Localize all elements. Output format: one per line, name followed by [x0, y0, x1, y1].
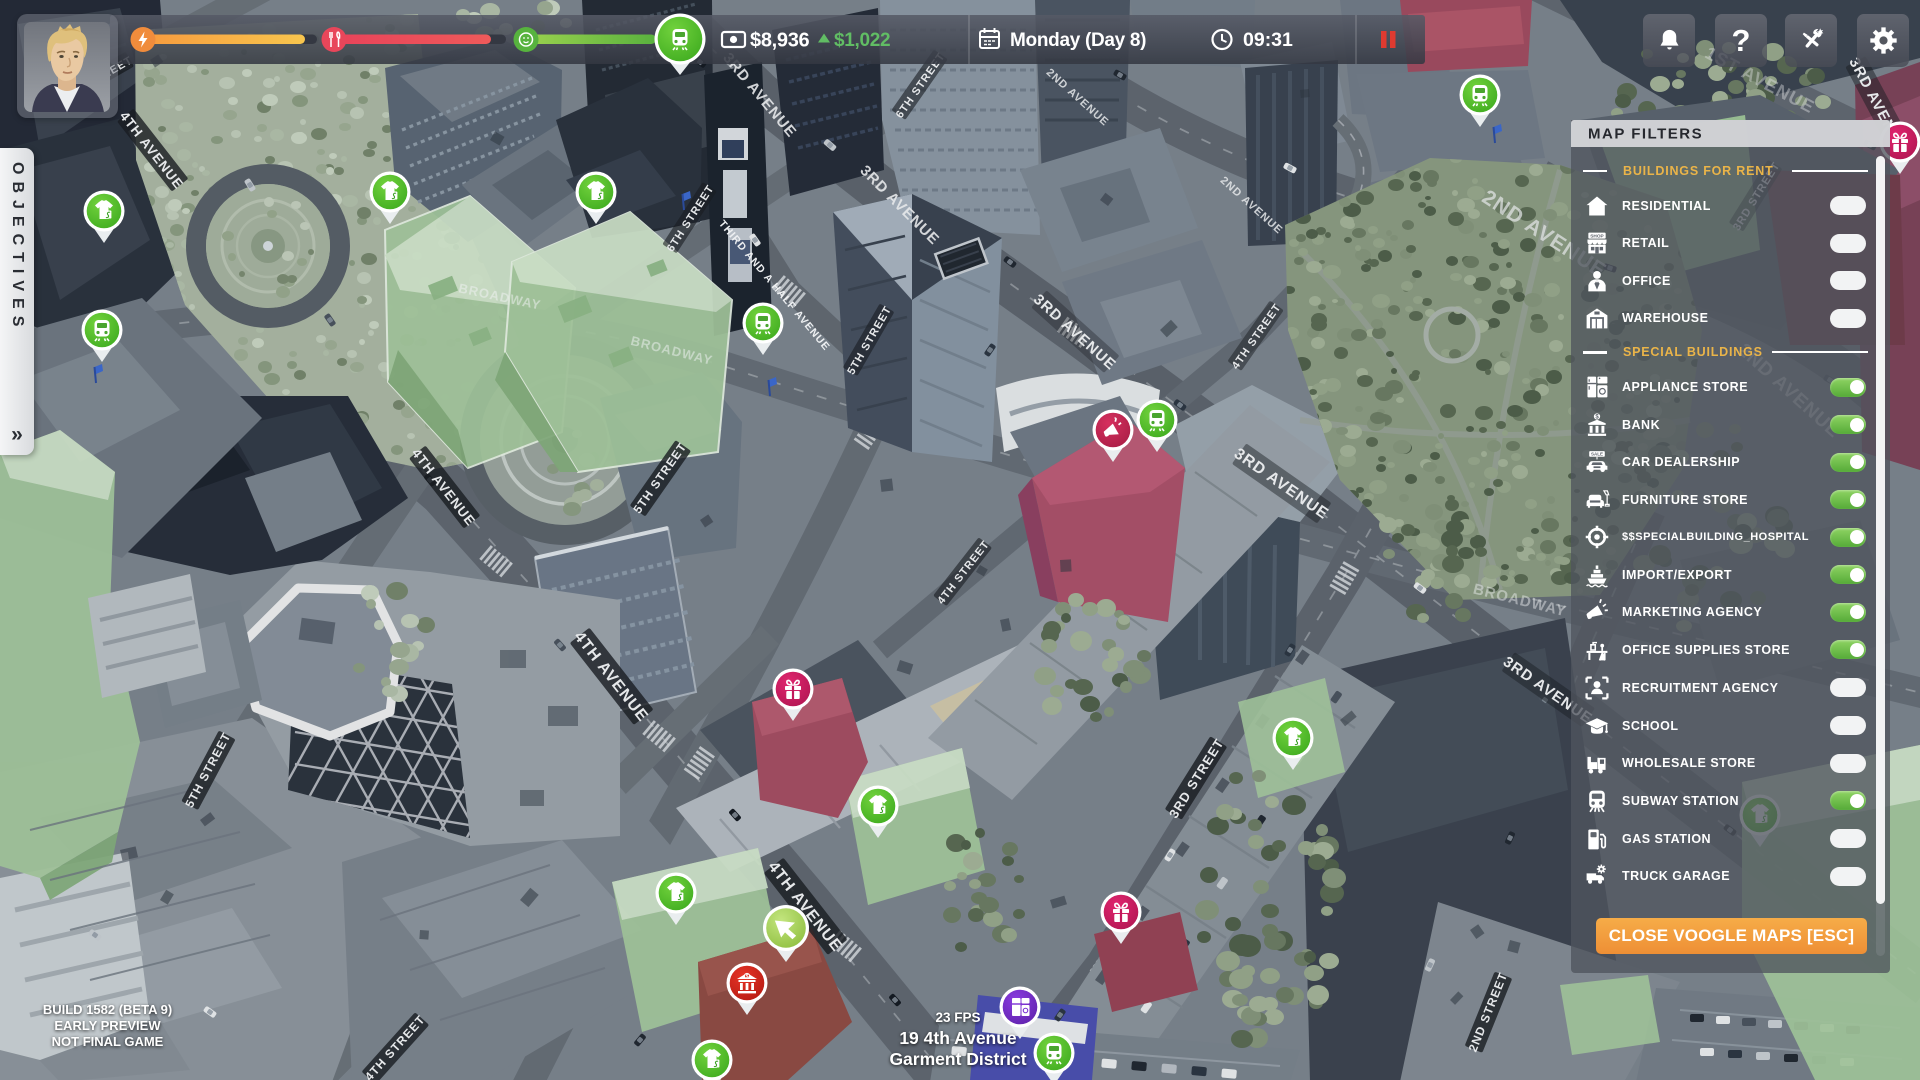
svg-text:SHOP: SHOP: [1590, 233, 1603, 239]
svg-text:SALE: SALE: [1591, 452, 1603, 457]
